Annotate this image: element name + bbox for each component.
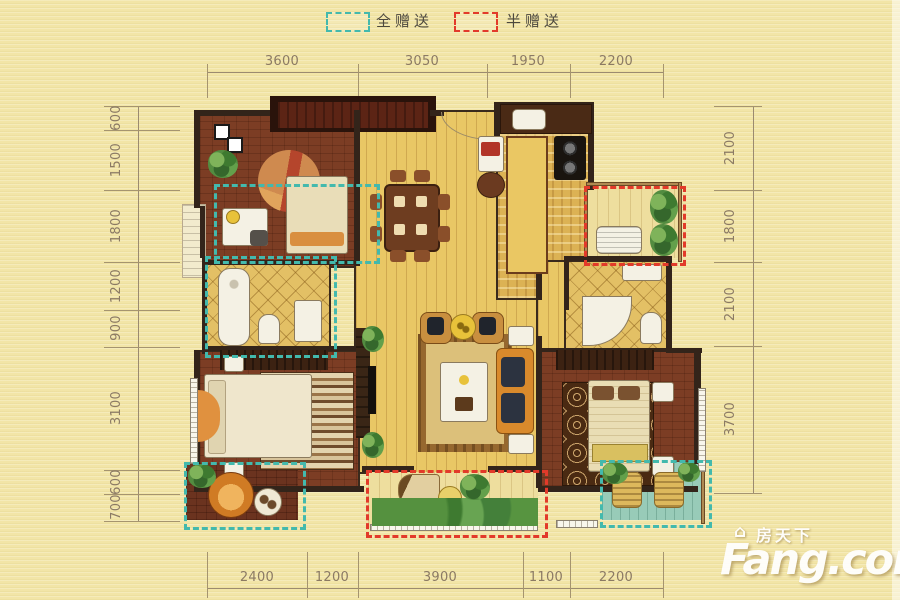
bench-cushion [481,142,500,156]
dimension-line [753,106,754,493]
dimension-value: 3600 [252,55,312,69]
bed-pillow [592,386,614,400]
dimension-value: 1800 [724,206,738,246]
window [190,378,198,464]
end-table [508,434,534,454]
side-table [450,314,476,340]
dimension-tick [207,64,208,98]
dimension-value: 1200 [110,266,124,306]
dimension-value: 3100 [110,388,124,428]
legend-half-gift-swatch [454,12,498,32]
scan-edge [892,0,900,600]
sofa-cushion [501,357,525,387]
coffee-table [440,362,488,422]
stove [554,136,586,180]
dimension-value: 1100 [516,571,576,585]
place-setting [394,224,405,235]
dimension-value: 3700 [724,399,738,439]
sofa [496,348,534,434]
legend: 全赠送 半赠送 [0,0,900,40]
dimension-tick [570,64,571,98]
dimension-tick [104,190,180,191]
nightstand [224,356,244,372]
dimension-value: 700 [110,487,124,527]
dimension-value: 2400 [227,571,287,585]
dimension-tick [207,552,208,598]
dimension-tick [663,64,664,98]
bed-pillow [618,386,640,400]
wall [564,258,569,310]
half-gift-zone-living-balcony [366,470,548,538]
place-setting [394,196,405,207]
wall [194,110,200,208]
plant [362,326,384,352]
dimension-value: 2100 [724,128,738,168]
dimension-line [207,72,663,73]
dimension-tick [358,64,359,98]
kitchen-sink [512,109,546,130]
dining-chair [438,194,450,210]
armchair-cushion [479,317,496,335]
dimension-tick [487,64,488,98]
dimension-tick [104,262,180,263]
dimension-value: 2200 [586,55,646,69]
dining-chair [414,170,430,182]
wardrobe [556,350,654,370]
dining-chair [438,226,450,242]
wall [200,206,205,258]
kitchen-island [506,136,548,274]
plant [362,432,384,458]
dimension-tick [714,262,762,263]
table-decor [459,375,469,385]
toilet [640,312,662,344]
table-tray [455,397,473,411]
plant [208,150,238,178]
brand-en: Fang.com [720,540,900,580]
legend-full-gift-label: 全赠送 [376,10,433,31]
dining-chair [390,250,406,262]
dimension-value: 600 [110,98,124,138]
dimension-tick [714,190,762,191]
dining-chair [390,170,406,182]
dimension-tick [714,106,762,107]
half-gift-zone-laundry-balcony [584,186,686,266]
dimension-tick [714,346,762,347]
dimension-value: 3900 [410,571,470,585]
dimension-value: 1950 [498,55,558,69]
watermark: ⌂ 房天下 Fang.com [716,520,900,590]
dimension-value: 2200 [586,571,646,585]
dining-chair [414,250,430,262]
dimension-tick [663,552,664,598]
legend-full-gift-swatch [326,12,370,32]
ottoman [477,172,505,198]
dimension-value: 2100 [724,284,738,324]
dimension-value: 1200 [302,571,362,585]
armchair [420,312,452,344]
full-gift-zone-bathroom [205,256,337,358]
dimension-value: 1800 [110,206,124,246]
dimension-value: 1500 [110,140,124,180]
dimension-value: 900 [110,308,124,348]
wall [666,258,672,352]
bay-window-seat [278,102,428,128]
dimension-line [207,588,663,589]
full-gift-zone-corner-balcony [184,462,306,530]
nightstand [652,382,674,402]
legend-half-gift-label: 半赠送 [506,10,563,31]
full-gift-zone-bedroom-balcony [600,460,712,528]
window [556,520,598,528]
dining-table [384,184,440,252]
dimension-value: 3050 [392,55,452,69]
place-setting [416,224,427,235]
end-table [508,326,534,346]
armchair [472,312,504,344]
dimension-line [138,106,139,521]
wall [194,110,276,116]
full-gift-zone-study [214,184,380,264]
wash-basin [622,264,662,281]
tv [368,366,376,414]
armchair-cushion [427,317,444,335]
place-setting [416,196,427,207]
floorplan-image: 全赠送 半赠送 3600 3050 1950 2200 2400 1200 39… [0,0,900,600]
sofa-cushion [501,393,525,423]
dimension-tick [714,493,762,494]
